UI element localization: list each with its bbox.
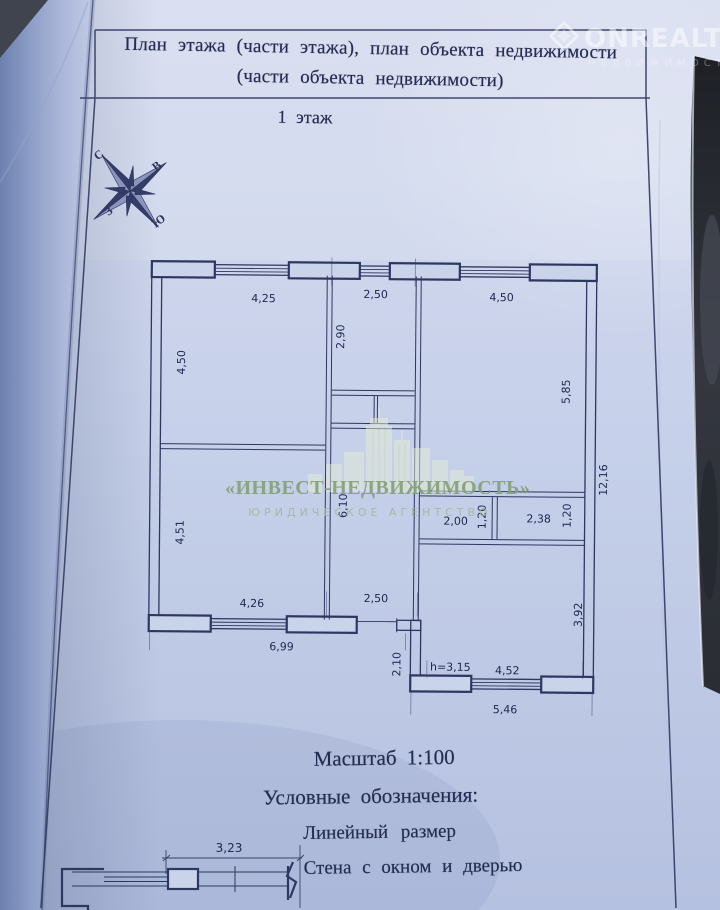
dim-bottom-lower-width: 5,46 xyxy=(493,703,518,716)
floor-heading: 1 этаж xyxy=(230,106,380,129)
dim-lower-room-width: 4,52 xyxy=(495,664,520,677)
onrealt-diamond-icon xyxy=(548,20,580,57)
document-artwork: С В З Ю xyxy=(0,0,720,910)
document-title-line1: План этажа (части этажа), план объекта н… xyxy=(124,29,617,68)
dim-room3-width: 4,50 xyxy=(489,291,514,304)
dim-closet2-width: 2,38 xyxy=(526,512,551,525)
dim-closet2-depth: 1,20 xyxy=(561,503,574,528)
dim-right-side-total: 12,16 xyxy=(597,464,610,496)
dim-room2-width: 2,50 xyxy=(363,288,388,301)
onrealt-subtitle-label: НЕДВИЖИМОСТЬ xyxy=(588,58,720,69)
dim-room4-height: 4,51 xyxy=(173,520,186,545)
dim-room1-width: 4,25 xyxy=(251,292,276,305)
dim-room1-height: 4,50 xyxy=(175,350,188,375)
dim-ceiling-height: h=3,15 xyxy=(430,661,471,674)
legend-sample-dimension-label: 3,23 xyxy=(216,841,243,855)
onrealt-brand-label: ONREALT xyxy=(584,24,720,54)
dim-step-depth: 2,10 xyxy=(390,652,403,677)
agency-watermark-name: «ИНВЕСТ-НЕДВИЖИМОСТЬ» xyxy=(225,477,515,500)
dim-hall-width: 2,50 xyxy=(364,592,389,605)
dim-room3-height: 5,85 xyxy=(560,379,573,404)
agency-watermark-subtitle: ЮРИДИЧЕСКОЕ АГЕНТСТВО xyxy=(225,506,515,519)
dim-room2-height: 2,90 xyxy=(334,324,347,349)
floor-plan-document-photo: С В З Ю xyxy=(0,0,720,910)
dim-lower-room-height: 3,92 xyxy=(572,603,585,628)
dim-bottom-left-width: 6,99 xyxy=(269,640,294,653)
document-title-line2: (части объекта недвижимости) xyxy=(237,62,504,97)
dim-room4-width: 4,26 xyxy=(240,597,265,610)
onrealt-watermark: ONREALT НЕДВИЖИМОСТЬ xyxy=(548,20,720,69)
